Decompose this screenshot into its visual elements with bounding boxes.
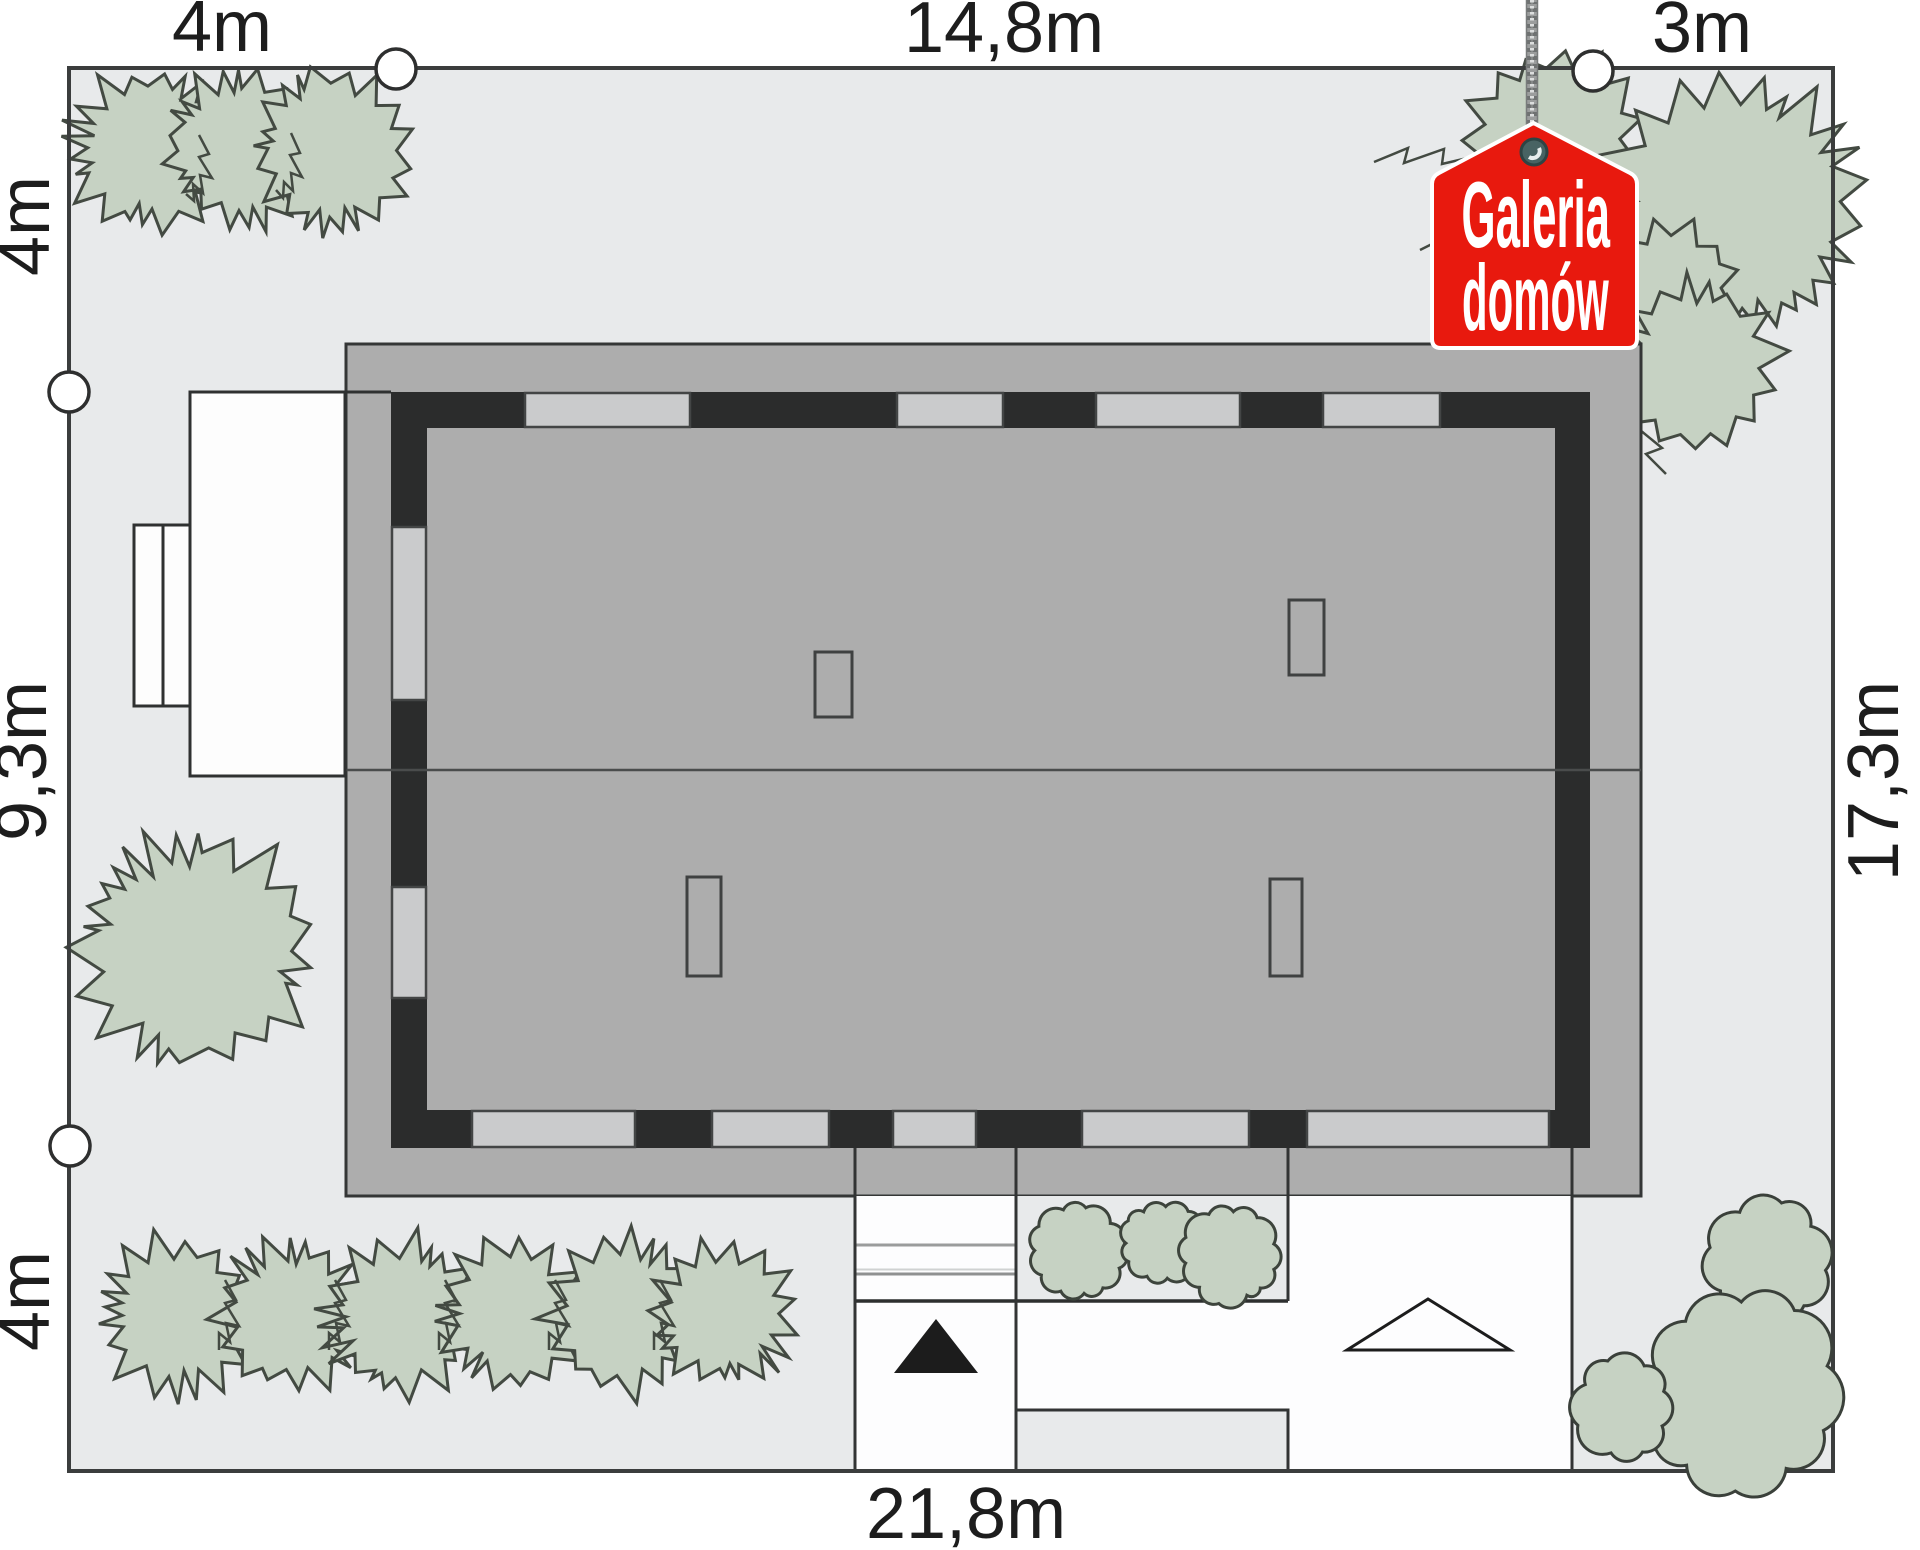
- svg-text:3m: 3m: [1652, 0, 1752, 68]
- svg-text:17,3m: 17,3m: [1834, 681, 1914, 881]
- svg-text:4m: 4m: [0, 1251, 65, 1351]
- svg-text:14,8m: 14,8m: [904, 0, 1104, 68]
- svg-text:4m: 4m: [0, 176, 65, 276]
- svg-text:21,8m: 21,8m: [866, 1474, 1066, 1550]
- svg-text:9,3m: 9,3m: [0, 681, 62, 841]
- svg-text:4m: 4m: [172, 0, 272, 67]
- svg-text:domów: domów: [1462, 246, 1609, 351]
